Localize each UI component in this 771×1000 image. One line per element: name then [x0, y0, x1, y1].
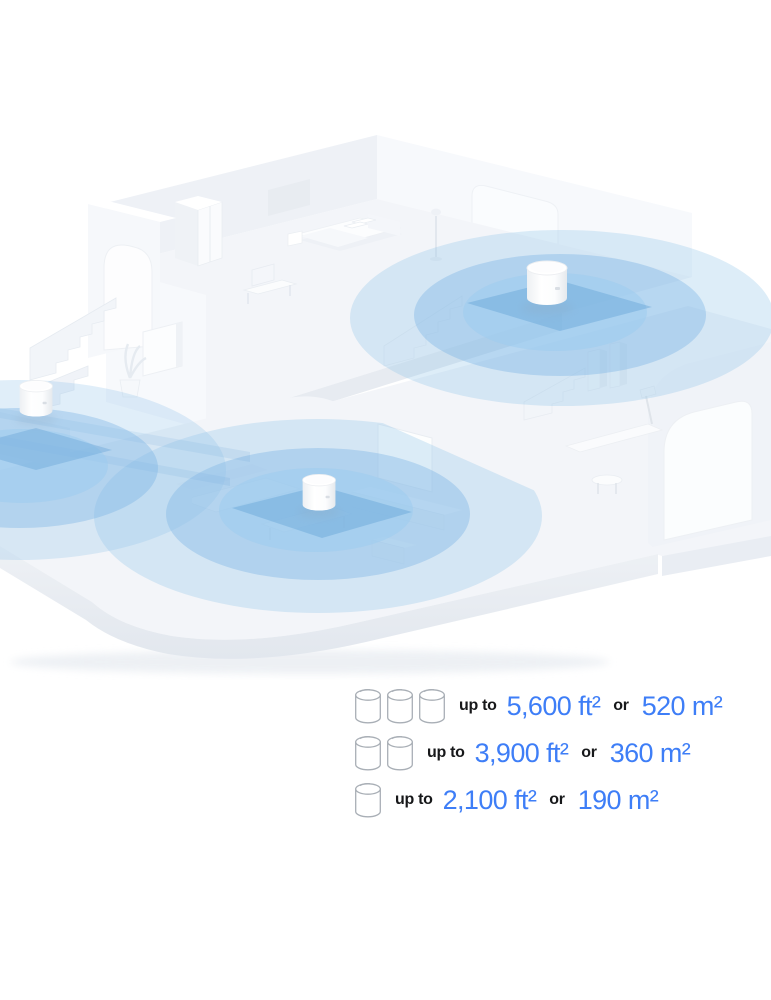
metric-area-value: 360 m²	[610, 738, 690, 769]
imperial-area-value: 2,100 ft²	[443, 785, 537, 816]
unit-icon-group	[354, 735, 414, 772]
unit-icon-group	[354, 782, 382, 819]
coverage-legend: up to 5,600 ft² or 520 m² up to 3,900 ft…	[354, 687, 722, 828]
house-illustration	[0, 0, 771, 680]
up-to-label: up to	[459, 697, 497, 715]
up-to-label: up to	[395, 791, 433, 809]
coverage-row-3-units: up to 5,600 ft² or 520 m²	[354, 687, 722, 725]
coverage-row-1-unit: up to 2,100 ft² or 190 m²	[354, 781, 722, 819]
arch-doorway-right	[664, 401, 752, 540]
or-label: or	[613, 697, 628, 715]
unit-icon-group	[354, 688, 446, 725]
deco-unit-icon	[354, 735, 382, 772]
window-opening	[143, 322, 182, 376]
imperial-area-value: 5,600 ft²	[507, 691, 601, 722]
deco-unit-left-ledge	[15, 380, 57, 425]
deco-unit-icon	[386, 735, 414, 772]
deco-unit-living-room	[298, 474, 340, 518]
or-label: or	[581, 744, 596, 762]
metric-area-value: 190 m²	[578, 785, 658, 816]
page: up to 5,600 ft² or 520 m² up to 3,900 ft…	[0, 0, 771, 1000]
deco-unit-icon	[354, 782, 382, 819]
deco-unit-icon	[418, 688, 446, 725]
deco-unit-icon	[386, 688, 414, 725]
or-label: or	[549, 791, 564, 809]
coverage-area-upper	[350, 230, 771, 406]
metric-area-value: 520 m²	[642, 691, 722, 722]
deco-unit-upper-floor	[521, 261, 573, 315]
imperial-area-value: 3,900 ft²	[475, 738, 569, 769]
up-to-label: up to	[427, 744, 465, 762]
deco-unit-icon	[354, 688, 382, 725]
coverage-row-2-units: up to 3,900 ft² or 360 m²	[354, 734, 722, 772]
wardrobe	[175, 196, 222, 266]
